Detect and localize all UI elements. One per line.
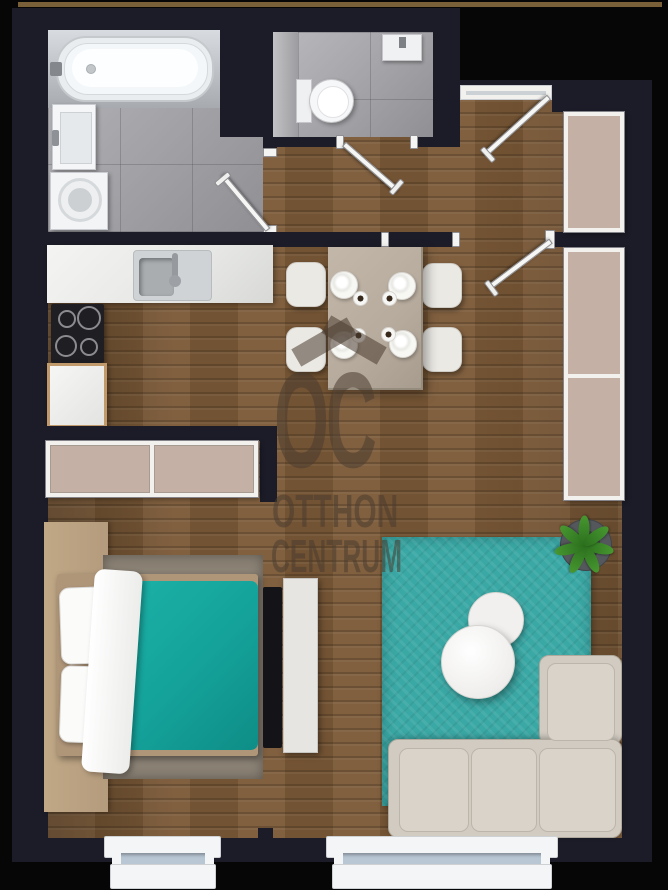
sofa-seat-cushion — [539, 748, 616, 832]
hall-wardrobe-upper — [564, 112, 624, 232]
kitchen-faucet-head — [169, 275, 181, 287]
burner — [80, 338, 98, 356]
shaft-between-bath-wc — [220, 30, 273, 137]
kitchen-sink-unit — [133, 250, 212, 301]
top-facade-line — [18, 2, 662, 7]
coffee-table-large — [441, 625, 515, 699]
bath-door-jamb-top — [263, 148, 277, 157]
wall-wc-bottom-left — [273, 137, 343, 147]
potted-plant — [556, 515, 616, 575]
living-window-ledge — [332, 864, 552, 889]
bedroom-closet — [46, 441, 258, 497]
wall-wc-right — [433, 8, 460, 147]
toilet-seat — [317, 86, 349, 118]
watermark-line2: CENTRUM — [271, 533, 402, 579]
kitchen-sink-basin — [139, 258, 174, 296]
bathtub-drain — [86, 64, 96, 74]
closet-sliding-panel — [50, 445, 150, 493]
wall-stub-entry-living — [555, 232, 622, 247]
washing-machine — [50, 172, 108, 230]
watermark-logo-text: OC — [274, 352, 374, 488]
entry-threshold-groove — [466, 91, 546, 95]
kitchen-lower-cabinet — [47, 363, 107, 428]
burner — [58, 310, 76, 328]
wc-sink-faucet — [399, 37, 406, 48]
wc-back-wall-tile — [273, 32, 298, 137]
tv-console — [283, 578, 318, 753]
burner — [77, 306, 101, 330]
vanity-sink — [60, 112, 92, 164]
coffee-cup — [353, 291, 368, 306]
dining-chair — [286, 262, 326, 307]
wall-entry-top — [552, 80, 638, 112]
hall-wardrobe-lower — [564, 248, 624, 500]
cooktop — [51, 304, 104, 363]
bathtub-faucet — [50, 62, 62, 76]
washer-drum-center — [68, 188, 92, 212]
watermark-line1: OTTHON — [272, 488, 398, 534]
wc-door-jamb-right — [410, 135, 418, 149]
wardrobe-divider — [568, 374, 620, 378]
sofa-seat-cushion — [471, 748, 537, 832]
hall-wall-jamb-mark-2 — [452, 232, 460, 247]
coffee-cup — [382, 291, 397, 306]
dining-chair — [422, 327, 462, 372]
wall-bedroom-top — [42, 426, 277, 441]
dining-chair — [422, 263, 462, 308]
wall-tab-bedroom-living — [258, 828, 273, 840]
floor-plan: OC OTTHON CENTRUM — [0, 0, 668, 890]
bedroom-window-ledge — [110, 864, 216, 889]
burner — [55, 335, 77, 357]
entry-threshold — [460, 85, 552, 100]
vanity-faucet — [52, 130, 59, 146]
bathtub — [56, 36, 214, 102]
sofa-chaise-cushion — [547, 663, 615, 741]
closet-sliding-panel — [154, 445, 254, 493]
hall-wall-jamb-mark-1 — [381, 232, 389, 247]
toilet-bowl — [309, 79, 354, 123]
tv-screen — [263, 587, 282, 748]
wc-hand-sink — [382, 34, 422, 61]
sofa-seat-cushion — [399, 748, 469, 832]
